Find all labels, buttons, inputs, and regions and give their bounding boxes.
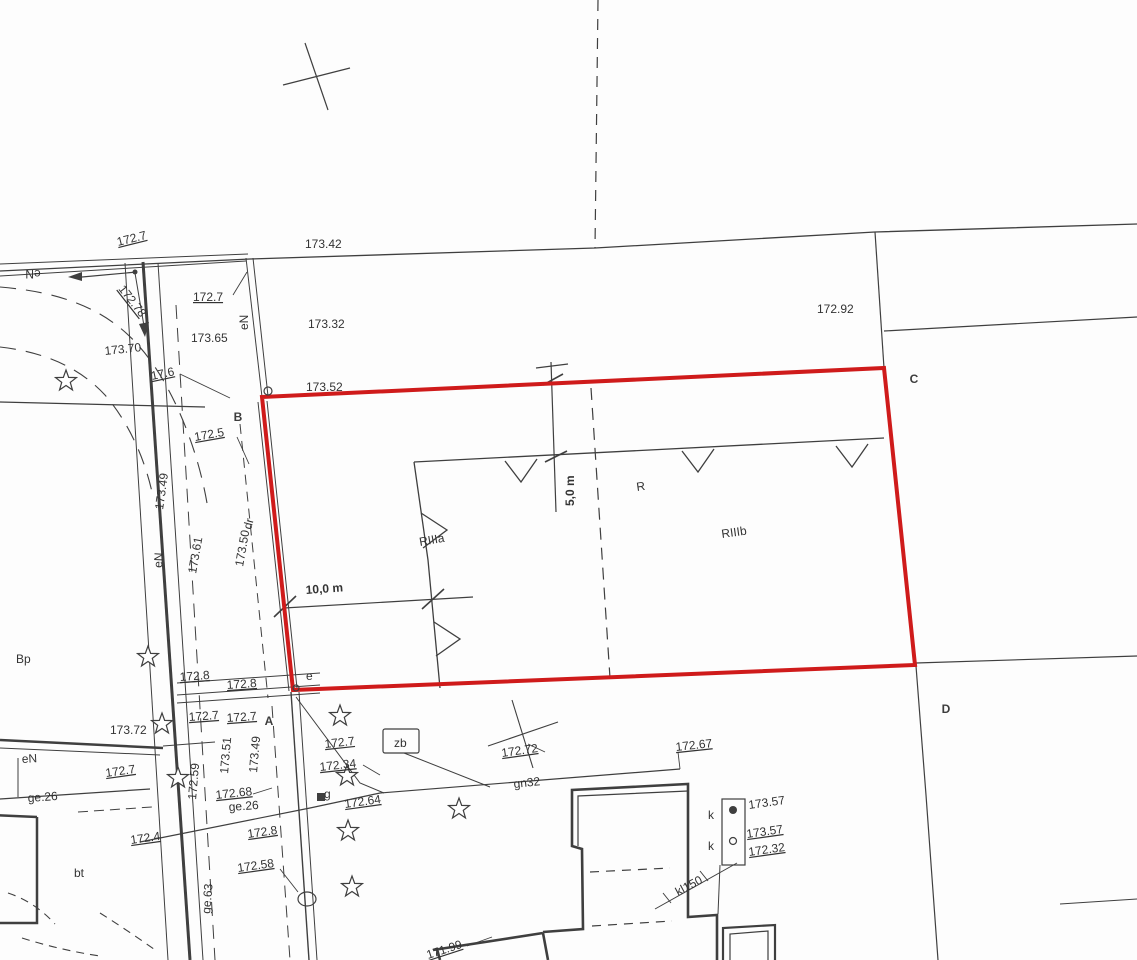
survey-cross-icon — [283, 43, 558, 768]
elev-label: 172.7 — [226, 709, 257, 725]
utility-label: ge.26 — [27, 789, 58, 805]
elev-label: 173.57 — [745, 822, 784, 841]
landuse-boundary — [414, 438, 884, 688]
utility-lines — [140, 752, 737, 914]
utility-label: k — [708, 839, 715, 853]
dimension-label: 5,0 m — [563, 475, 577, 506]
star-icon — [152, 713, 173, 733]
elev-label: 172.72 — [500, 741, 539, 760]
elev-label: 172.7 — [115, 228, 148, 249]
star-icon — [56, 370, 77, 390]
star-icon — [342, 876, 363, 896]
road-lines — [125, 258, 317, 960]
landuse-label: RIIIa — [418, 531, 446, 549]
corner-label-a: A — [265, 714, 274, 728]
elev-label: 173.70 — [104, 340, 142, 358]
elev-label: 172.4 — [129, 829, 161, 847]
landuse-label: bt — [74, 866, 85, 880]
map-labels-layer: 172.7173.42eN172.78172.7173.65173.32173.… — [16, 228, 951, 960]
map-canvas: 172.7173.42eN172.78172.7173.65173.32173.… — [0, 0, 1137, 960]
red-boundary-polygon — [262, 368, 915, 690]
right-parcel-lines — [875, 232, 1137, 960]
elev-label: 173.57 — [747, 793, 786, 812]
star-icon — [338, 820, 359, 840]
landuse-label: RIIIb — [720, 524, 747, 541]
survey-marks — [264, 387, 745, 906]
elev-label: 172.7 — [188, 708, 219, 724]
elev-label: 172.7 — [193, 290, 223, 304]
utility-label: eN — [25, 267, 40, 281]
dashed-curves — [0, 287, 207, 956]
leader-lines — [180, 272, 545, 946]
elev-label: 173.42 — [305, 237, 342, 251]
elev-label: 172.58 — [236, 856, 275, 875]
utility-label: zb — [394, 736, 407, 750]
elev-label: 172.8 — [246, 823, 278, 841]
elev-label: 172.8 — [179, 668, 210, 684]
filled-point-icon — [729, 806, 737, 814]
star-icon — [449, 798, 470, 818]
elev-label: 172.5 — [193, 425, 225, 444]
star-icon — [138, 646, 159, 666]
elev-label: 173.52 — [306, 380, 343, 394]
dimension-label: 10,0 m — [305, 580, 343, 597]
elev-label: 173.50 — [232, 529, 252, 568]
corner-label-d: D — [942, 702, 951, 716]
open-point-icon — [730, 838, 737, 845]
landuse-label: dr — [240, 517, 256, 531]
utility-label: eN — [21, 751, 37, 766]
utility-label: g — [324, 787, 331, 801]
elev-label: 172.8 — [226, 676, 257, 692]
elev-label: 172.92 — [817, 302, 854, 316]
elev-label: 172.64 — [343, 792, 382, 811]
dimension-lines — [274, 362, 568, 617]
landuse-label: R — [635, 479, 646, 494]
landuse-label: Bp — [16, 652, 31, 666]
elev-label: 173.72 — [110, 723, 147, 737]
corner-label-b: B — [234, 410, 243, 424]
utility-label: eN — [151, 552, 166, 568]
elev-label: 173.49 — [152, 472, 171, 511]
dashed-parcel-lines — [591, 0, 610, 678]
elev-label: 172.59 — [185, 762, 202, 800]
elev-label: 172.7 — [324, 734, 356, 751]
elev-label: 17.6 — [150, 364, 176, 383]
elev-label: 172.32 — [747, 840, 786, 859]
survey-point-label: e — [306, 669, 313, 683]
utility-label: ge.26 — [228, 798, 259, 814]
elev-label: 173.49 — [246, 735, 263, 773]
utility-label: eN — [237, 315, 251, 330]
elev-label: 173.51 — [217, 736, 234, 774]
utility-label: ge.63 — [199, 883, 216, 914]
buildings — [0, 784, 775, 960]
elev-label: 173.32 — [308, 317, 345, 331]
elev-label: 173.65 — [191, 331, 228, 345]
utility-label: k — [708, 808, 715, 822]
elev-label: 171.99 — [425, 937, 465, 960]
top-boundary-lines — [0, 224, 1137, 326]
elev-label: 172.67 — [675, 736, 713, 754]
elev-label: 173.61 — [185, 536, 205, 575]
corner-label-c: C — [910, 372, 919, 386]
utility-label: gn32 — [513, 774, 541, 791]
star-icon — [330, 705, 351, 725]
cadastral-map: 172.7173.42eN172.78172.7173.65173.32173.… — [0, 0, 1137, 960]
elev-label: 172.7 — [104, 762, 136, 780]
